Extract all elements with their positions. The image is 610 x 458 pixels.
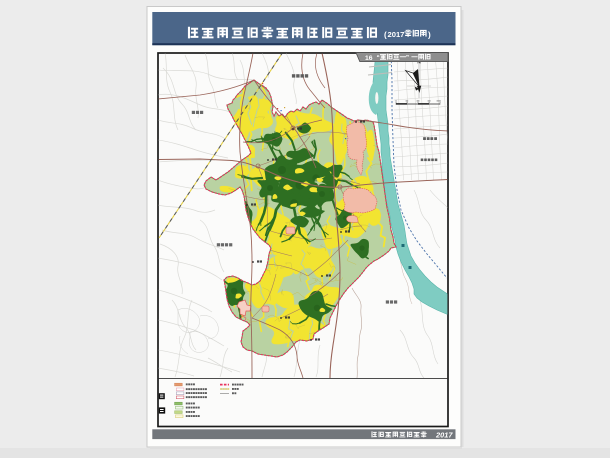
svg-text:): ) [428, 31, 431, 40]
svg-text:”: ” [406, 55, 409, 62]
svg-text:“: “ [377, 55, 380, 62]
svg-text:2017: 2017 [388, 30, 405, 39]
svg-text:16: 16 [365, 55, 373, 62]
svg-text:2017: 2017 [435, 430, 453, 439]
